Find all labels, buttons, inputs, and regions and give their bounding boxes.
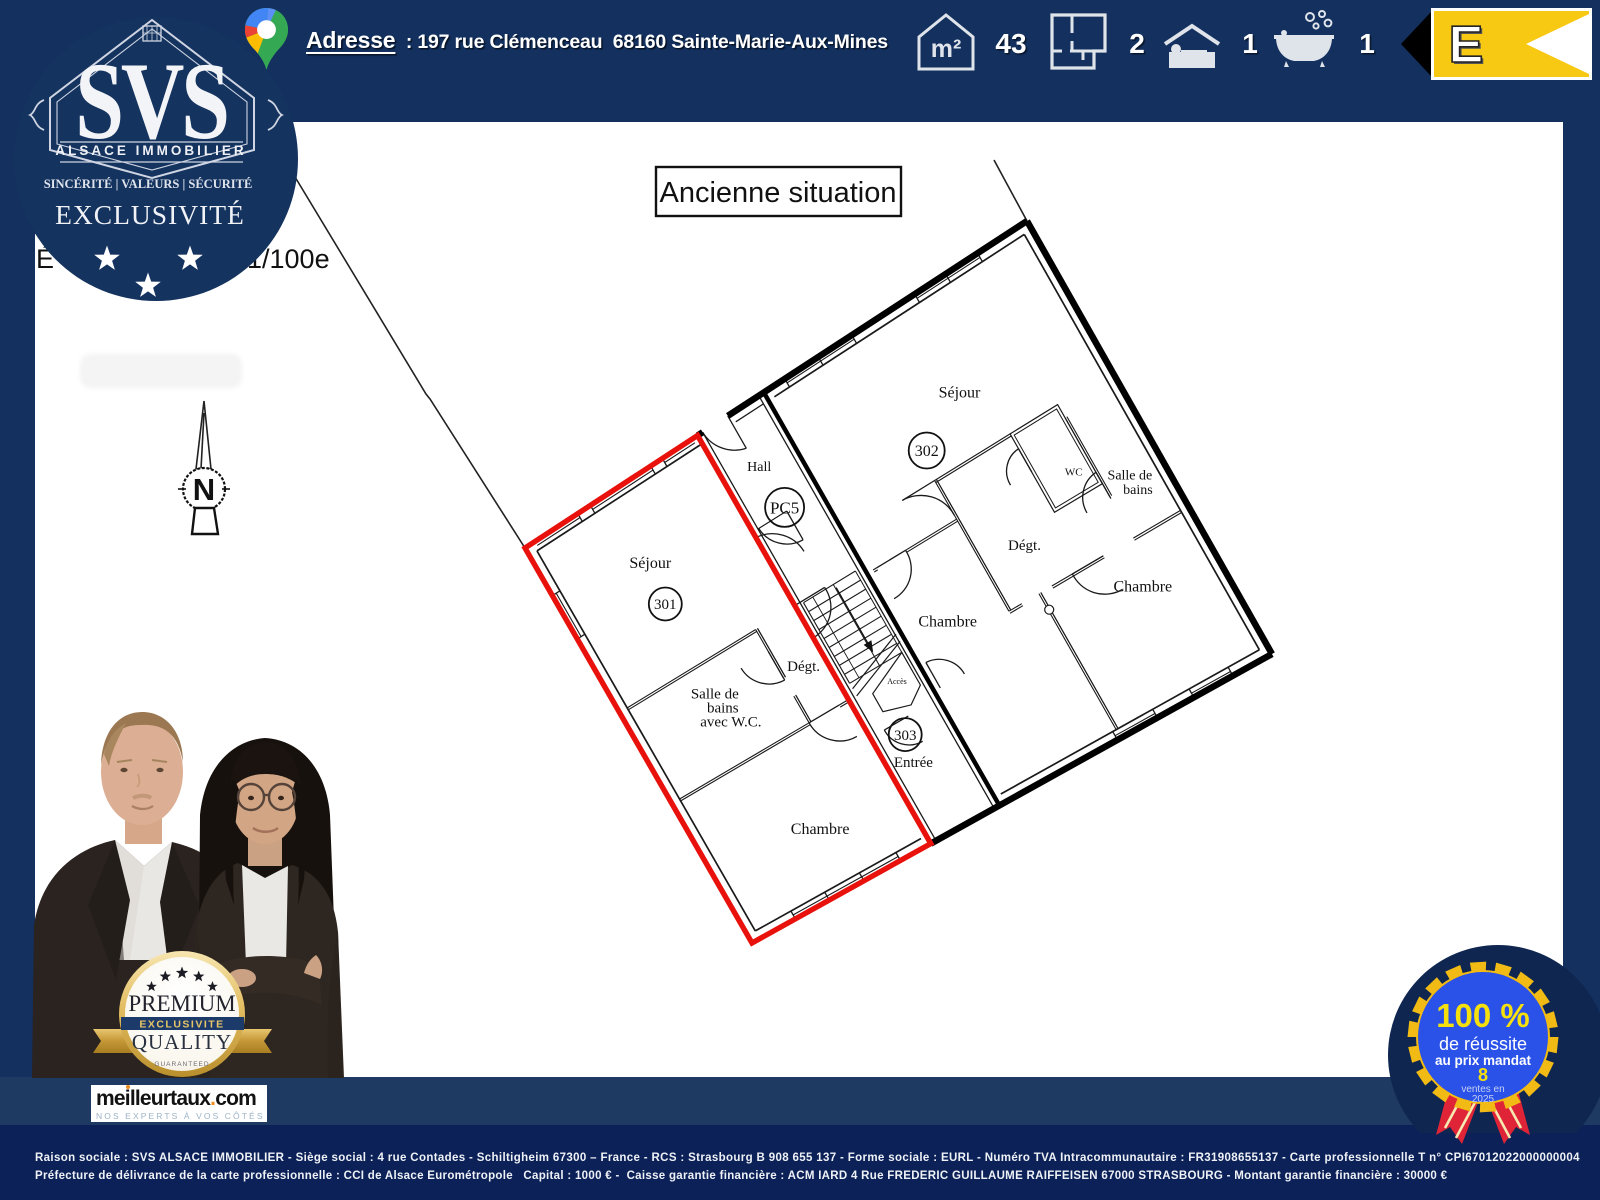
svg-text:100 %: 100 % (1436, 997, 1530, 1034)
svg-text:Dégt.: Dégt. (1008, 538, 1041, 554)
svg-text:ALSACE IMMOBILIER: ALSACE IMMOBILIER (55, 143, 246, 158)
svg-text:Salle de: Salle de (1108, 469, 1153, 484)
svg-text:PC5: PC5 (770, 498, 799, 517)
svg-text:Accès: Accès (887, 677, 907, 686)
svg-text:QUALITY: QUALITY (132, 1030, 232, 1054)
svg-text:2025: 2025 (1472, 1094, 1495, 1105)
svg-text:E: E (1449, 16, 1484, 74)
svg-text:303: 303 (894, 728, 917, 744)
svg-text:Dégt.: Dégt. (787, 659, 820, 675)
svg-text:Entrée: Entrée (894, 755, 933, 771)
svg-text:302: 302 (915, 443, 939, 460)
svg-text:PREMIUM: PREMIUM (128, 991, 235, 1016)
svg-text:Hall: Hall (747, 460, 771, 475)
svg-text:WC: WC (1065, 467, 1083, 479)
svg-text:SINCÉRITÉ | VALEURS | SÉCURIT: SINCÉRITÉ | VALEURS | SÉCURITÉ (44, 177, 253, 191)
svg-text:301: 301 (654, 597, 677, 613)
svg-text:bains: bains (1123, 483, 1153, 498)
svg-text:Séjour: Séjour (629, 555, 671, 572)
svg-text:EXCLUSIVITE: EXCLUSIVITE (139, 1019, 224, 1031)
svg-text:EXCLUSIVITÉ: EXCLUSIVITÉ (55, 199, 245, 230)
svg-text:Chambre: Chambre (918, 614, 977, 631)
svg-text:Chambre: Chambre (1113, 578, 1172, 595)
svg-text:avec W.C.: avec W.C. (700, 715, 761, 731)
svg-text:8: 8 (1478, 1065, 1488, 1085)
svg-text:N: N (193, 472, 215, 507)
svg-text:Ancienne situation: Ancienne situation (660, 177, 897, 209)
svg-text:GUARANTEED: GUARANTEED (154, 1061, 209, 1068)
svg-text:m²: m² (931, 35, 962, 63)
svg-text:de réussite: de réussite (1439, 1034, 1527, 1054)
svg-text:Séjour: Séjour (939, 384, 981, 401)
svg-text:Chambre: Chambre (791, 821, 850, 838)
